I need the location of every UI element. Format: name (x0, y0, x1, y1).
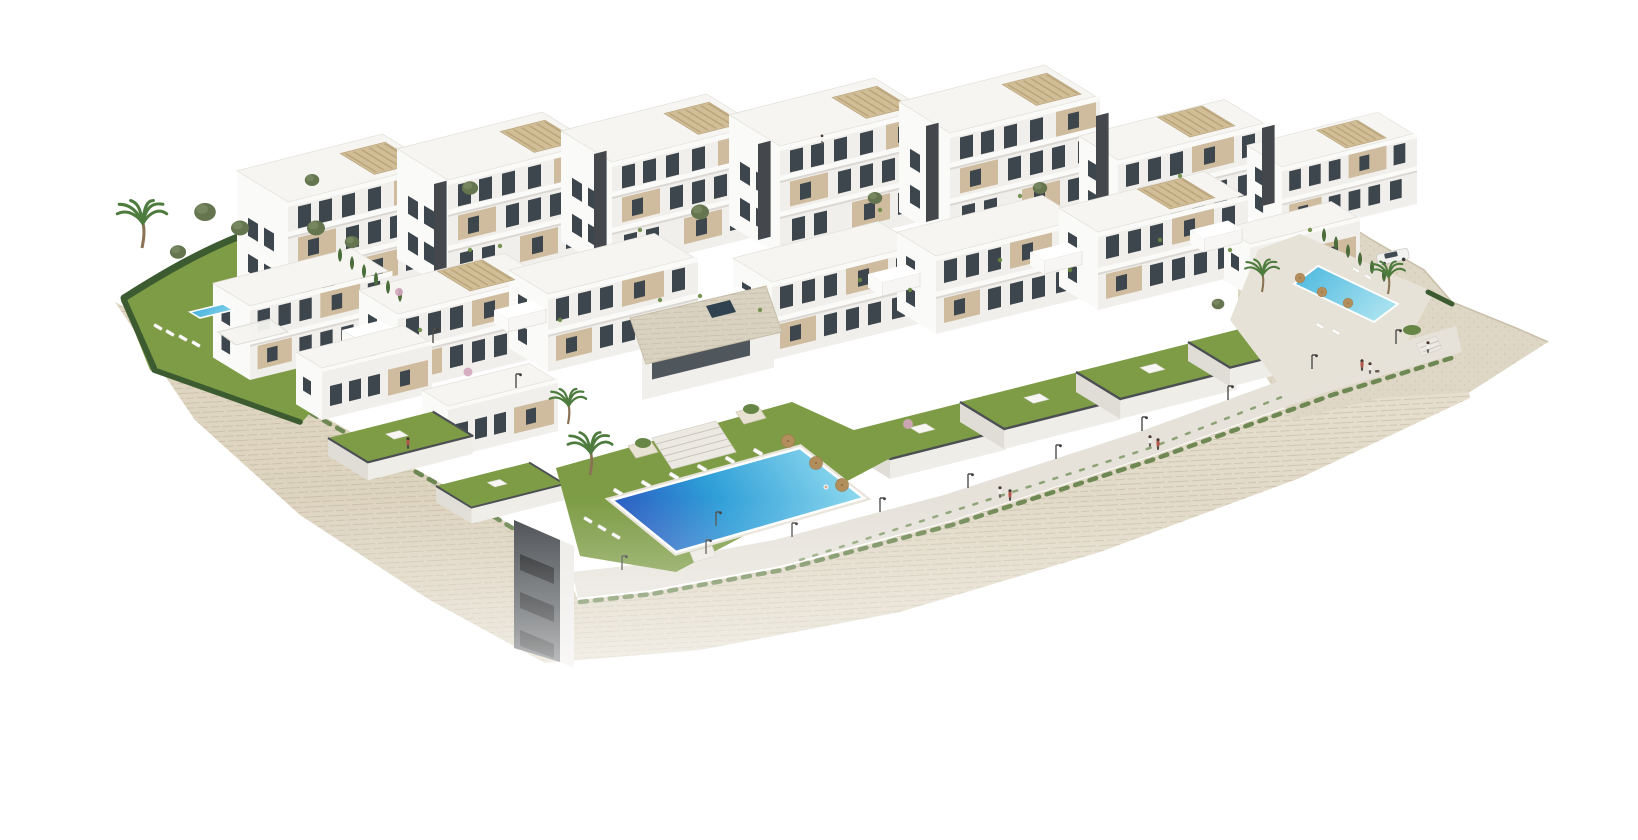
residential-complex-render (0, 0, 1638, 840)
stair-core (434, 181, 447, 276)
swimmer (824, 485, 828, 489)
stair-core (926, 123, 939, 222)
flowering-shrub (903, 419, 913, 429)
render-canvas (0, 0, 1638, 840)
stair-core (594, 151, 607, 254)
stair-core (758, 141, 771, 240)
dog (1375, 370, 1380, 373)
flowering-shrub (395, 288, 403, 296)
stair-core (1096, 113, 1109, 208)
stair-core (1262, 125, 1275, 206)
flowering-shrub (464, 368, 473, 377)
render-fadeout (40, 498, 1638, 810)
planter (1403, 325, 1421, 335)
